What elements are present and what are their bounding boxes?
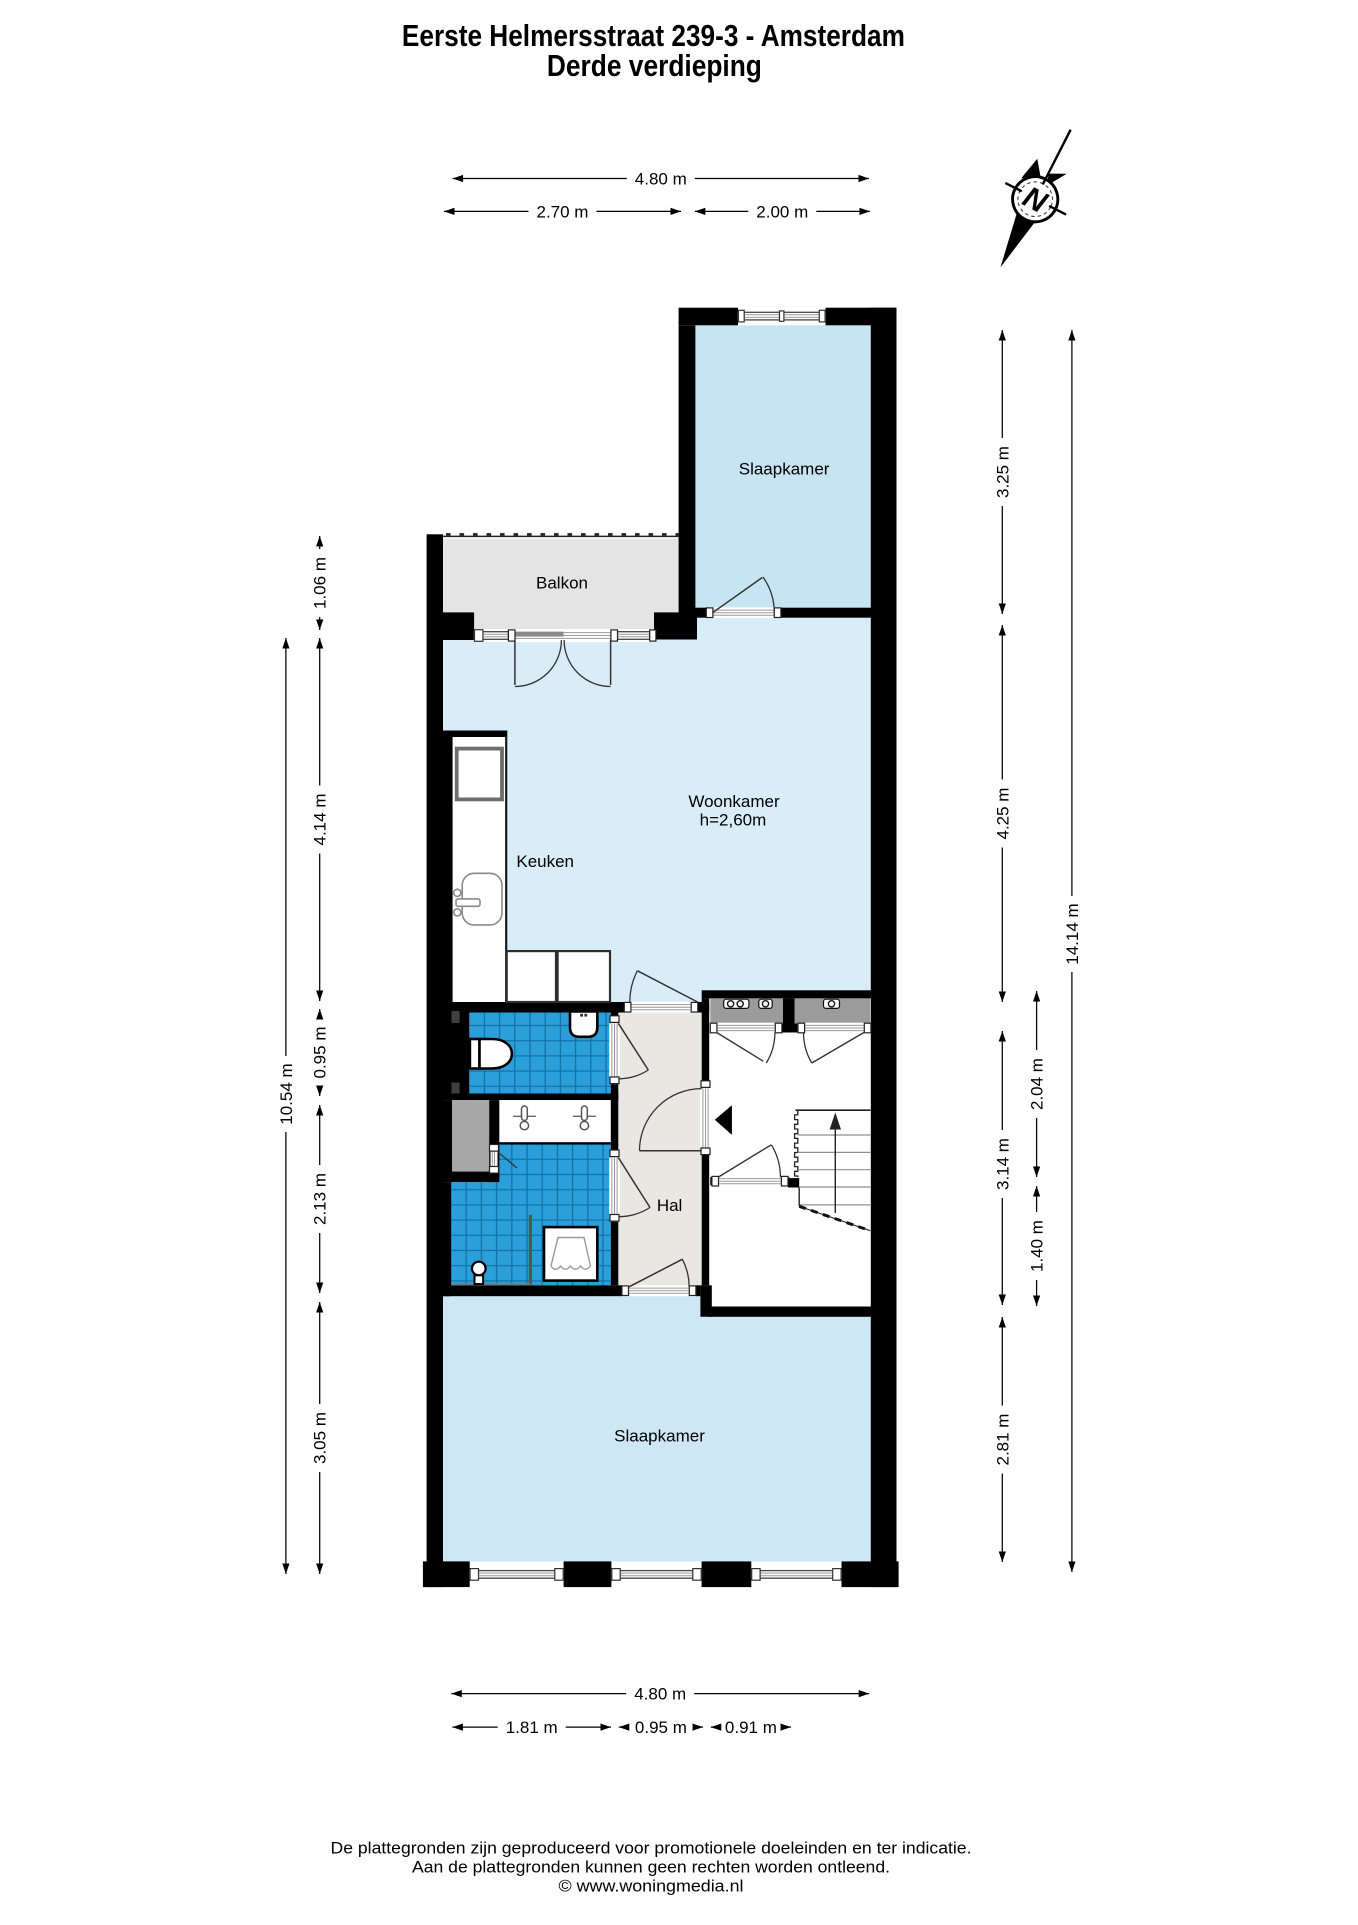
svg-text:1.40 m: 1.40 m [1028, 1220, 1047, 1272]
svg-text:10.54 m: 10.54 m [277, 1063, 296, 1124]
svg-text:4.80 m: 4.80 m [635, 170, 687, 189]
svg-text:3.25 m: 3.25 m [993, 446, 1012, 498]
svg-text:Slaapkamer: Slaapkamer [739, 459, 830, 478]
svg-text:4.14 m: 4.14 m [311, 794, 330, 846]
svg-text:De plattegronden zijn geproduc: De plattegronden zijn geproduceerd voor … [331, 1839, 972, 1858]
svg-text:Balkon: Balkon [536, 574, 588, 593]
svg-text:0.95 m: 0.95 m [311, 1027, 330, 1079]
svg-text:3.14 m: 3.14 m [993, 1138, 1012, 1190]
svg-text:14.14 m: 14.14 m [1063, 903, 1082, 964]
svg-text:2.00 m: 2.00 m [756, 202, 808, 221]
svg-text:1.06 m: 1.06 m [311, 557, 330, 609]
svg-text:2.04 m: 2.04 m [1028, 1058, 1047, 1110]
svg-text:Woonkamer: Woonkamer [688, 792, 780, 811]
svg-text:h=2,60m: h=2,60m [700, 810, 767, 829]
svg-text:© www.woningmedia.nl: © www.woningmedia.nl [559, 1877, 744, 1896]
svg-text:2.13 m: 2.13 m [311, 1173, 330, 1225]
svg-text:Derde verdieping: Derde verdieping [547, 48, 762, 83]
svg-text:Slaapkamer: Slaapkamer [614, 1427, 705, 1446]
svg-text:2.70 m: 2.70 m [537, 202, 589, 221]
svg-text:0.91 m: 0.91 m [725, 1718, 777, 1737]
svg-text:3.05 m: 3.05 m [311, 1412, 330, 1464]
svg-text:Keuken: Keuken [516, 852, 574, 871]
svg-text:1.81 m: 1.81 m [506, 1718, 558, 1737]
svg-text:0.95 m: 0.95 m [635, 1718, 687, 1737]
svg-text:Hal: Hal [657, 1196, 683, 1215]
svg-text:2.81 m: 2.81 m [993, 1414, 1012, 1466]
svg-text:4.80 m: 4.80 m [634, 1685, 686, 1704]
svg-text:Aan de plattegronden kunnen ge: Aan de plattegronden kunnen geen rechten… [412, 1858, 890, 1877]
svg-text:4.25 m: 4.25 m [993, 788, 1012, 840]
